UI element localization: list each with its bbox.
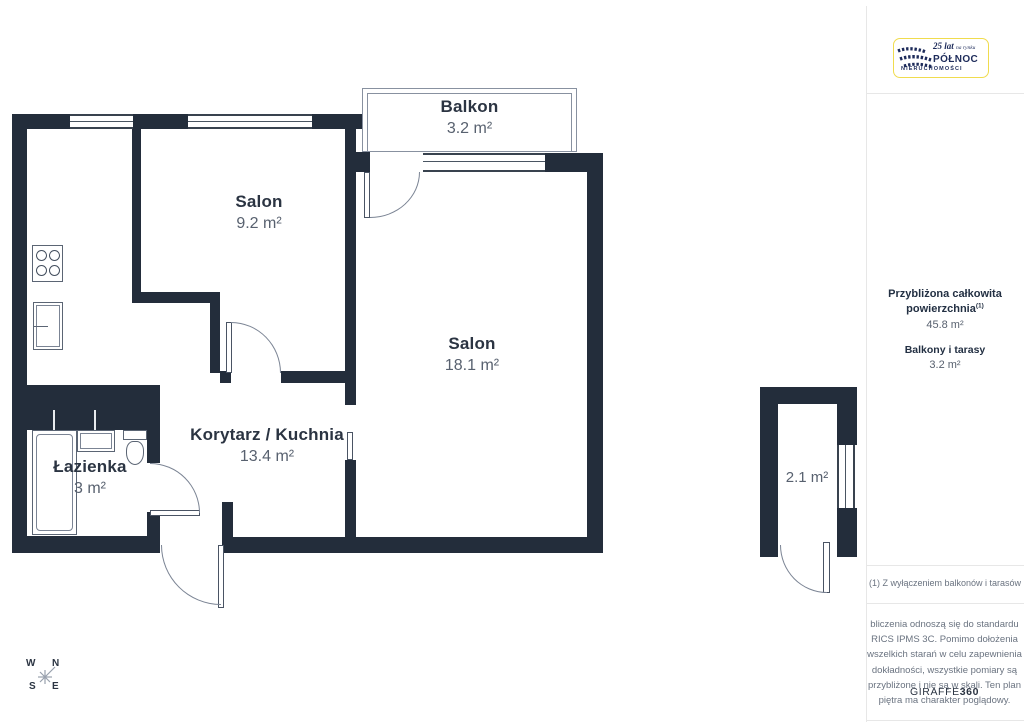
compass-rose-icon [28, 660, 62, 694]
sidebar-border [866, 6, 867, 722]
room-label-balkon: Balkon 3.2 m² [362, 97, 577, 138]
tap-line [53, 410, 55, 430]
floor-plan-page: Balkon 3.2 m² Salon 9.2 m² Salon 18.1 m²… [0, 0, 1024, 724]
wall [12, 536, 160, 553]
window [188, 114, 312, 129]
sidebar-divider [866, 565, 1024, 566]
balconies-value: 3.2 m² [880, 359, 1010, 371]
room-label-loggia: 2.1 m² [757, 469, 857, 486]
door-arc [161, 545, 221, 605]
sidebar-divider [866, 720, 1024, 721]
logo-years: 25 lat na rynku [933, 41, 975, 51]
room-area: 3 m² [20, 480, 160, 498]
room-area: 18.1 m² [372, 357, 572, 375]
room-label-lazienka: Łazienka 3 m² [20, 457, 160, 498]
door-arc [780, 545, 827, 593]
wall [281, 371, 345, 383]
wall [133, 114, 188, 129]
giraffe360-logo: GIRAFFE360 [866, 686, 1023, 698]
polnoc-logo: 25 lat na rynku PÓŁNOC NIERUCHOMOŚCI [893, 38, 989, 78]
room-label-salon-duzy: Salon 18.1 m² [372, 334, 572, 375]
wall [587, 153, 603, 553]
wall [222, 537, 603, 553]
stove-icon [32, 245, 63, 282]
kitchen-sink-icon [33, 302, 63, 350]
toilet-icon [123, 430, 147, 440]
logo-name: PÓŁNOC [933, 54, 978, 65]
sidebar-divider [866, 603, 1024, 604]
room-name: Salon [159, 192, 359, 212]
room-name: Salon [372, 334, 572, 354]
window [70, 114, 133, 129]
wall [132, 292, 220, 303]
wall [837, 508, 857, 557]
total-area-label: Przybliżona całkowita powierzchnia(1) [880, 287, 1010, 317]
sidebar-divider [866, 93, 1024, 94]
total-area-value: 45.8 m² [880, 319, 1010, 331]
room-area: 3.2 m² [362, 120, 577, 138]
tap-line [94, 410, 96, 430]
wall [210, 303, 220, 373]
room-label-salon-maly: Salon 9.2 m² [159, 192, 359, 233]
wall [132, 114, 141, 300]
balconies-label: Balkony i tarasy [880, 344, 1010, 356]
room-label-korytarz-kuchnia: Korytarz / Kuchnia 13.4 m² [167, 425, 367, 466]
door-arc [370, 172, 420, 218]
room-name: Łazienka [20, 457, 160, 477]
room-area: 9.2 m² [159, 215, 359, 233]
wall [837, 387, 857, 445]
window [423, 153, 545, 172]
wall [345, 114, 356, 405]
room-name: Korytarz / Kuchnia [167, 425, 367, 445]
room-name: Balkon [362, 97, 577, 117]
wall [345, 460, 356, 537]
room-area: 13.4 m² [167, 448, 367, 466]
wall [545, 153, 603, 172]
logo-subname: NIERUCHOMOŚCI [901, 66, 963, 72]
footnote-text: (1) Z wyłączeniem balkonów i tarasów [868, 578, 1022, 588]
footnote-marker: (1) [976, 302, 984, 309]
bathroom-sink-icon [77, 430, 115, 452]
door-arc [231, 322, 281, 373]
